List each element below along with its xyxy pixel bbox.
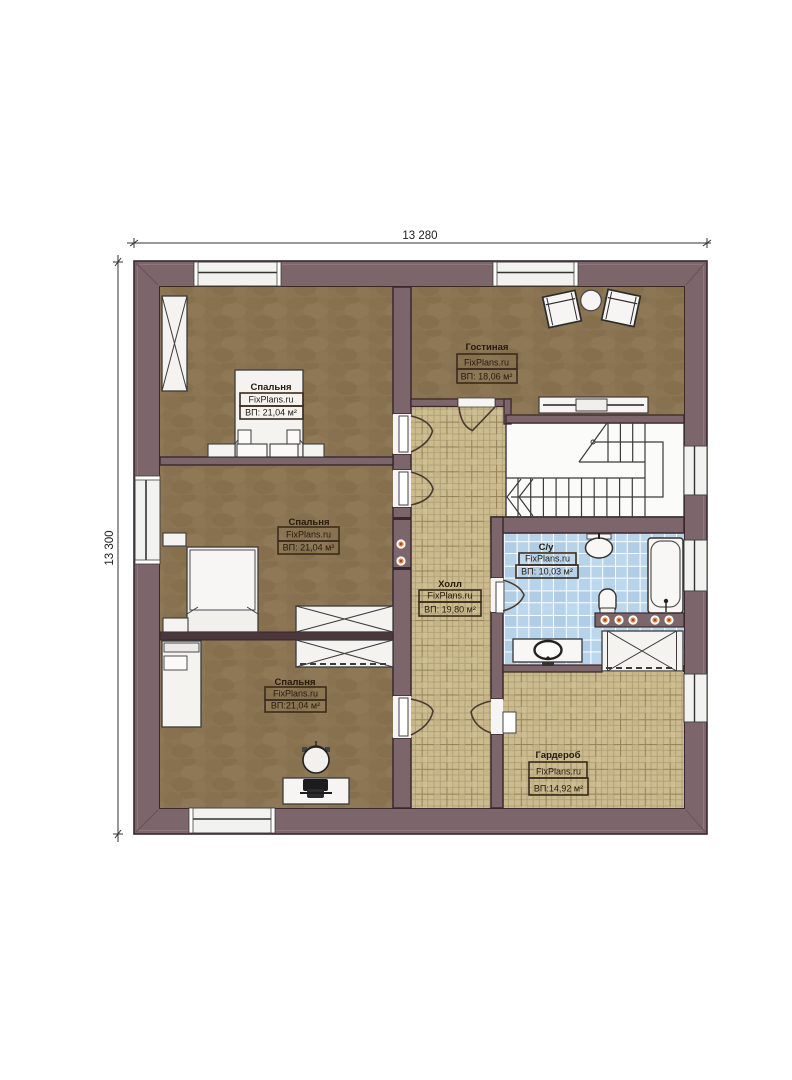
svg-text:FixPlans.ru: FixPlans.ru bbox=[286, 530, 331, 540]
svg-text:FixPlans.ru: FixPlans.ru bbox=[427, 591, 472, 601]
svg-text:FixPlans.ru: FixPlans.ru bbox=[273, 689, 318, 699]
svg-text:FixPlans.ru: FixPlans.ru bbox=[464, 358, 509, 368]
svg-text:13 280: 13 280 bbox=[402, 230, 437, 242]
svg-text:FixPlans.ru: FixPlans.ru bbox=[248, 395, 293, 405]
svg-text:13 300: 13 300 bbox=[104, 530, 116, 565]
svg-text:ВП:14,92 м²: ВП:14,92 м² bbox=[534, 784, 583, 794]
svg-text:Холл: Холл bbox=[438, 579, 462, 590]
svg-text:ВП:21,04 м²: ВП:21,04 м² bbox=[271, 701, 320, 711]
svg-text:ВП: 21,04 м²: ВП: 21,04 м² bbox=[283, 543, 335, 553]
svg-text:Спальня: Спальня bbox=[250, 382, 291, 393]
svg-text:FixPlans.ru: FixPlans.ru bbox=[525, 554, 570, 564]
svg-text:Гардероб: Гардероб bbox=[536, 750, 581, 761]
svg-text:ВП: 18,06 м²: ВП: 18,06 м² bbox=[461, 372, 513, 382]
svg-text:ВП: 21,04 м²: ВП: 21,04 м² bbox=[245, 408, 297, 418]
svg-text:FixPlans.ru: FixPlans.ru bbox=[536, 767, 581, 777]
svg-text:Гостиная: Гостиная bbox=[466, 342, 509, 353]
svg-text:ВП: 19,80 м²: ВП: 19,80 м² bbox=[424, 605, 476, 615]
svg-text:С/у: С/у bbox=[539, 542, 555, 553]
svg-text:ВП: 10,03 м²: ВП: 10,03 м² bbox=[521, 567, 573, 577]
